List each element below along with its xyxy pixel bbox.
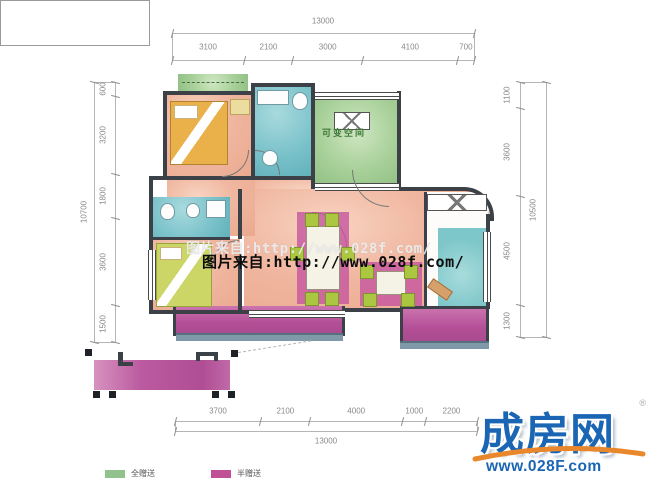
top-dim-value: 3000 — [319, 43, 337, 52]
balcony-railing — [400, 341, 489, 349]
right-total-line — [546, 82, 547, 337]
bathtub — [257, 90, 289, 105]
left-dim-value: 600 — [99, 83, 108, 96]
bottom-dim-value: 1000 — [405, 407, 423, 416]
bottom-dim-value: 2200 — [443, 407, 461, 416]
balcony-railing — [176, 333, 343, 341]
chair — [305, 292, 319, 306]
right-tick — [516, 194, 525, 197]
pillow — [174, 105, 198, 119]
left-dim-value: 3600 — [99, 253, 108, 271]
top-dim-total: 13000 — [312, 17, 334, 26]
left-dim-total: 10700 — [80, 201, 89, 223]
left-tick — [111, 80, 120, 83]
wall — [163, 91, 167, 180]
logo-url: www.028F.com — [486, 458, 602, 476]
legend-label: 半赠送 — [237, 468, 261, 479]
chair — [363, 293, 377, 307]
right-dim-total: 10500 — [529, 198, 538, 220]
legend-item-1: 半赠送 — [211, 468, 261, 479]
wall — [486, 306, 489, 344]
bottom-dim-value: 3700 — [209, 407, 227, 416]
top-dim-value: 3100 — [199, 43, 217, 52]
wall — [251, 176, 315, 180]
chair — [325, 292, 339, 306]
chengfang-logo: 成房网 ® www.028F.com — [470, 396, 648, 486]
balcony-right — [400, 308, 488, 344]
washer — [206, 200, 226, 218]
wall-notch — [214, 352, 218, 361]
legend-swatch — [105, 470, 125, 478]
bottom-total-line — [175, 431, 477, 432]
right-dim-value: 3600 — [503, 144, 512, 162]
wall — [251, 83, 315, 87]
nightstand — [230, 99, 250, 115]
wall-notch — [118, 362, 133, 366]
wall — [238, 189, 242, 239]
chair — [305, 213, 319, 227]
right-dim-value: 1300 — [503, 312, 512, 330]
watermark-text-dark: 图片来自:http://www.028f.com/ — [202, 251, 464, 272]
top-segment-line — [172, 60, 474, 61]
wall — [397, 91, 401, 191]
wall — [149, 310, 249, 314]
legend: 全赠送半赠送 — [105, 468, 261, 479]
column — [109, 391, 116, 398]
bottom-dim-total: 13000 — [315, 437, 337, 446]
sink — [262, 150, 278, 166]
right-dim-value: 4500 — [503, 242, 512, 260]
right-segment-line — [520, 82, 521, 337]
toilet — [160, 203, 175, 220]
floorplan-image: 3100210030004100700130003700210040001000… — [0, 0, 650, 487]
left-dim-value: 3200 — [99, 127, 108, 145]
coffee-table — [376, 271, 406, 295]
wall — [400, 306, 403, 344]
wall — [173, 306, 176, 336]
wall — [163, 91, 255, 95]
toilet — [292, 92, 308, 110]
top-total-line — [172, 33, 474, 34]
wall — [149, 176, 169, 180]
left-dim-value: 1500 — [99, 315, 108, 333]
right-dim-value: 1100 — [503, 87, 512, 104]
top-dim-value: 700 — [459, 43, 472, 52]
wall — [345, 308, 403, 312]
column — [93, 391, 100, 398]
top-tick — [472, 56, 475, 65]
window — [249, 310, 345, 318]
left-total-line — [94, 82, 95, 342]
legend-swatch — [211, 470, 231, 478]
right-tick — [516, 80, 525, 83]
column — [228, 391, 235, 398]
balcony-top-rail-line — [182, 82, 244, 83]
chair — [401, 293, 415, 307]
balcony-detail-frame — [0, 0, 150, 46]
legend-label: 全赠送 — [131, 468, 155, 479]
sink — [186, 203, 200, 218]
window — [315, 92, 399, 100]
bottom-segment-line — [175, 421, 477, 422]
chair — [325, 213, 339, 227]
balcony-detail-fill — [94, 360, 230, 390]
top-dim-value: 4100 — [401, 43, 419, 52]
wall-notch — [196, 352, 200, 361]
kitchen-counter — [427, 194, 487, 211]
legend-item-0: 全赠送 — [105, 468, 155, 479]
wall — [167, 176, 255, 180]
bottom-dim-value: 2100 — [276, 407, 294, 416]
flexible-space-label: 可变空间 — [322, 126, 366, 139]
window — [483, 232, 491, 302]
left-segment-line — [115, 82, 116, 342]
column — [85, 349, 92, 356]
window — [148, 250, 156, 300]
bottom-dim-value: 4000 — [347, 407, 365, 416]
pillow — [160, 247, 182, 260]
left-dim-value: 1800 — [99, 187, 108, 205]
column — [212, 391, 219, 398]
leader-line — [238, 340, 311, 353]
wall — [397, 187, 455, 191]
registered-trademark-icon: ® — [639, 398, 646, 408]
top-dim-value: 2100 — [260, 43, 278, 52]
